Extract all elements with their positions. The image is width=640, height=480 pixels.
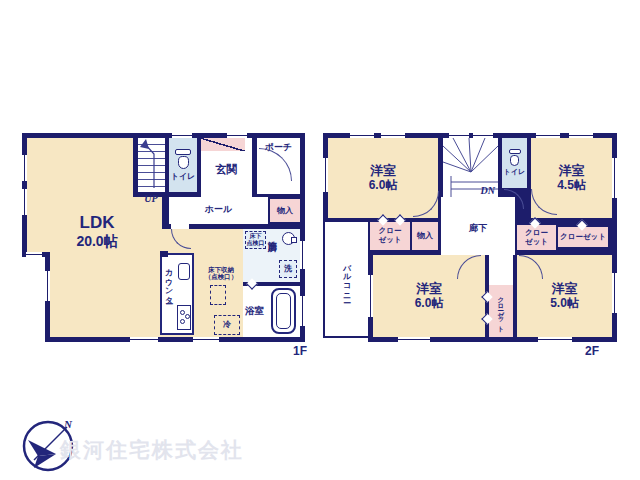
window [22,189,27,215]
kitchen-sink-icon [178,263,190,280]
floorplan-2f: バルコニー 洋室 6.0帖 DN [323,133,617,342]
underfloor-hatch: 床下 点検口 [245,231,266,249]
ldk-name: LDK [52,213,142,233]
closet-a-line2: ゼット [378,236,401,245]
closet-a: クロー ゼット [370,222,410,250]
window [350,133,374,138]
compass-north-label: N [63,418,73,430]
underfloor-hatch-line2: 点検口 [247,240,265,247]
bedroom-tl-name: 洋室 [370,164,396,179]
closet-c: クローゼット [558,227,608,247]
underfloor-storage-line2: （点検口） [196,273,246,280]
staircase-2f: DN [443,138,498,197]
closet-b-line2: ゼット [525,238,548,247]
bedroom-tr-name: 洋室 [559,164,585,179]
floorplan-canvas: UP トイレ 玄関 ポーチ ホール 物入 床下 点検口 [0,0,640,480]
fridge-space: 冷 [214,315,240,335]
toilet-label: トイレ [504,168,526,176]
storage-label: 物入 [417,231,433,240]
window [381,133,405,138]
window [22,155,27,181]
toilet-icon [509,149,521,166]
room-washroom: 床下 点検口 洗面所 洗 [243,229,300,282]
underfloor-storage-label: 床下収納 （点検口） [196,266,246,281]
window [130,337,158,342]
bedroom-tl-area: 6.0帖 [369,179,398,193]
window [612,273,617,313]
window [45,271,50,301]
room-storage-2f: 物入 [412,222,438,250]
window [398,337,430,342]
floor-label-1f: 1F [293,344,307,358]
closet-b: クロー ゼット [517,225,556,250]
kitchen-counter: カウンター [160,253,194,335]
ldk-area: 20.0帖 [52,233,142,249]
floor-label-2f: 2F [585,344,599,358]
window [300,241,305,269]
balcony-label: バルコニー [342,258,351,299]
closet-d: クローゼット [489,285,513,337]
window [569,133,593,138]
room-storage-1f: 物入 [270,199,300,222]
washer-space: 洗 [279,260,297,278]
fridge-label: 冷 [223,320,231,329]
room-ldk [27,138,133,197]
room-toilet-1f: トイレ [169,138,197,192]
bathtub-icon [271,288,296,334]
corridor-label: 廊下 [441,223,515,233]
window [612,158,617,198]
bedroom-tr-area: 4.5帖 [557,179,586,193]
stairs-up-label: UP [134,193,168,205]
washer-label: 洗 [284,264,292,273]
washroom-label: 洗面所 [267,234,277,237]
bath-label: 浴室 [245,306,271,317]
closet-c-label: クローゼット [560,233,606,242]
underfloor-storage-line1: 床下収納 [196,266,246,273]
company-name: 銀河住宅株式会社 [60,436,244,464]
bedroom-bl-area: 6.0帖 [415,297,444,311]
washbasin-icon [282,232,295,245]
floorplan-1f: UP トイレ 玄関 ポーチ ホール 物入 床下 点検口 [22,133,305,342]
underfloor-storage-box [210,285,226,305]
toilet-icon [175,149,191,169]
hall-label: ホール [169,204,268,214]
window [193,337,219,342]
window [323,158,328,192]
window [538,337,572,342]
counter-label: カウンター [164,263,173,299]
outside-notch [22,257,45,342]
toilet-label: トイレ [171,172,196,181]
stove-icon [177,305,191,330]
staircase-1f [138,138,165,192]
balcony-sliding-door [368,275,373,317]
corridor-extension [489,253,513,285]
ldk-label: LDK 20.0帖 [52,213,142,249]
closet-d-label: クローゼット [497,292,504,329]
bedroom-br-area: 5.0帖 [550,297,579,311]
room-bathroom: 浴室 [243,286,300,337]
window [536,133,560,138]
window [227,133,247,138]
counter-cap [160,251,168,257]
balcony: バルコニー [323,220,370,338]
storage-label: 物入 [277,206,293,215]
underfloor-hatch-line1: 床下 [250,233,262,240]
window [172,133,192,138]
room-toilet-2f: トイレ [502,138,527,188]
window [26,252,42,257]
stairs-down-label: DN [481,185,495,197]
window [473,133,493,138]
shoe-cabinet [201,138,245,151]
stairs-up-arrow-icon [138,138,165,192]
entrance-label: 玄関 [201,163,252,176]
bedroom-br-name: 洋室 [552,282,578,297]
window [300,296,305,326]
bedroom-bl-name: 洋室 [416,282,442,297]
window [449,133,469,138]
